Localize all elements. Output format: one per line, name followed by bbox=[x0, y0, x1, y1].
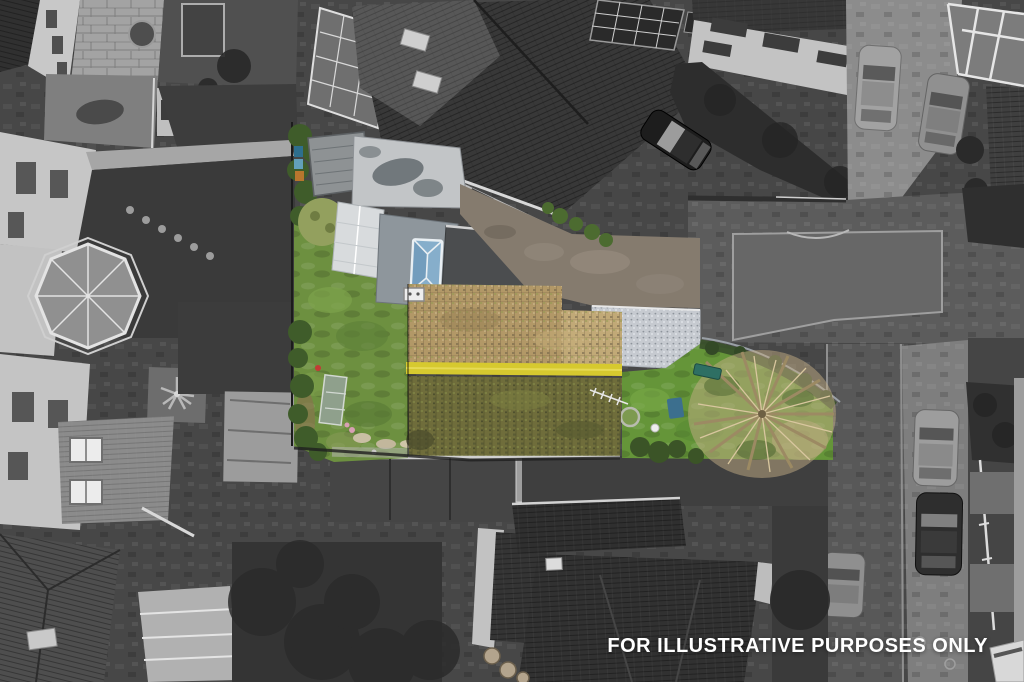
red-toy bbox=[315, 365, 321, 371]
white-van bbox=[990, 640, 1024, 682]
blue-garden-item bbox=[667, 397, 685, 419]
long-shed-roof bbox=[223, 391, 299, 482]
garden-bin bbox=[294, 146, 303, 157]
skylight bbox=[27, 628, 57, 650]
scene-svg bbox=[0, 0, 1024, 682]
garden-bin bbox=[295, 171, 304, 181]
parked-car-gray-1 bbox=[854, 45, 902, 132]
bc-skylight bbox=[546, 558, 563, 571]
watermark-text: FOR ILLUSTRATIVE PURPOSES ONLY bbox=[607, 635, 988, 658]
stone-circle bbox=[621, 408, 639, 426]
square-planter bbox=[182, 4, 224, 56]
bc-tree bbox=[770, 570, 830, 630]
white-ball bbox=[651, 424, 659, 432]
garden-tree bbox=[217, 49, 251, 83]
left-mid-yard bbox=[178, 302, 300, 394]
hedge-tr bbox=[962, 184, 1024, 248]
parked-car-street-1 bbox=[913, 409, 960, 486]
aerial-photo: FOR ILLUSTRATIVE PURPOSES ONLY bbox=[0, 0, 1024, 682]
round-planter bbox=[129, 21, 155, 47]
parked-car-street-2 bbox=[915, 493, 962, 576]
flat-sheds bbox=[330, 456, 522, 522]
white-wall bbox=[1014, 378, 1024, 682]
garden-bin bbox=[294, 159, 303, 169]
